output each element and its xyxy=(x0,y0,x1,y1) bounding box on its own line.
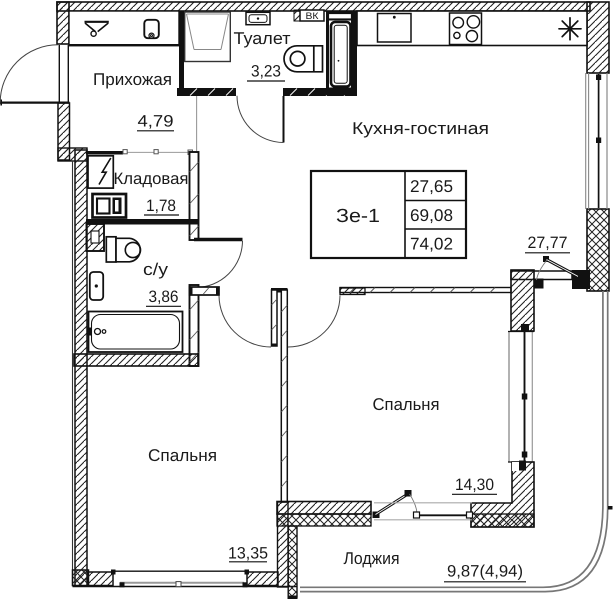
svg-text:Кухня-гостиная: Кухня-гостиная xyxy=(352,119,489,138)
svg-text:Спальня: Спальня xyxy=(148,446,217,465)
svg-text:3,23: 3,23 xyxy=(251,63,281,81)
svg-text:9,87(4,94): 9,87(4,94) xyxy=(447,563,523,581)
svg-text:Зе-1: Зе-1 xyxy=(336,206,380,227)
svg-text:Кладовая: Кладовая xyxy=(114,170,189,188)
svg-text:Туалет: Туалет xyxy=(234,29,291,48)
svg-text:ВК: ВК xyxy=(306,11,320,22)
svg-text:14,30: 14,30 xyxy=(455,476,494,494)
svg-text:4,79: 4,79 xyxy=(138,113,174,131)
svg-text:74,02: 74,02 xyxy=(410,235,453,254)
svg-text:27,65: 27,65 xyxy=(410,177,453,196)
svg-text:Прихожая: Прихожая xyxy=(93,70,172,89)
svg-text:1,78: 1,78 xyxy=(146,197,176,215)
svg-text:с/у: с/у xyxy=(143,260,169,279)
svg-text:3,86: 3,86 xyxy=(149,288,179,306)
svg-text:27,77: 27,77 xyxy=(528,234,568,252)
svg-text:69,08: 69,08 xyxy=(410,206,453,225)
svg-text:13,35: 13,35 xyxy=(228,545,268,563)
svg-text:Спальня: Спальня xyxy=(373,395,440,414)
svg-text:Лоджия: Лоджия xyxy=(344,549,400,568)
